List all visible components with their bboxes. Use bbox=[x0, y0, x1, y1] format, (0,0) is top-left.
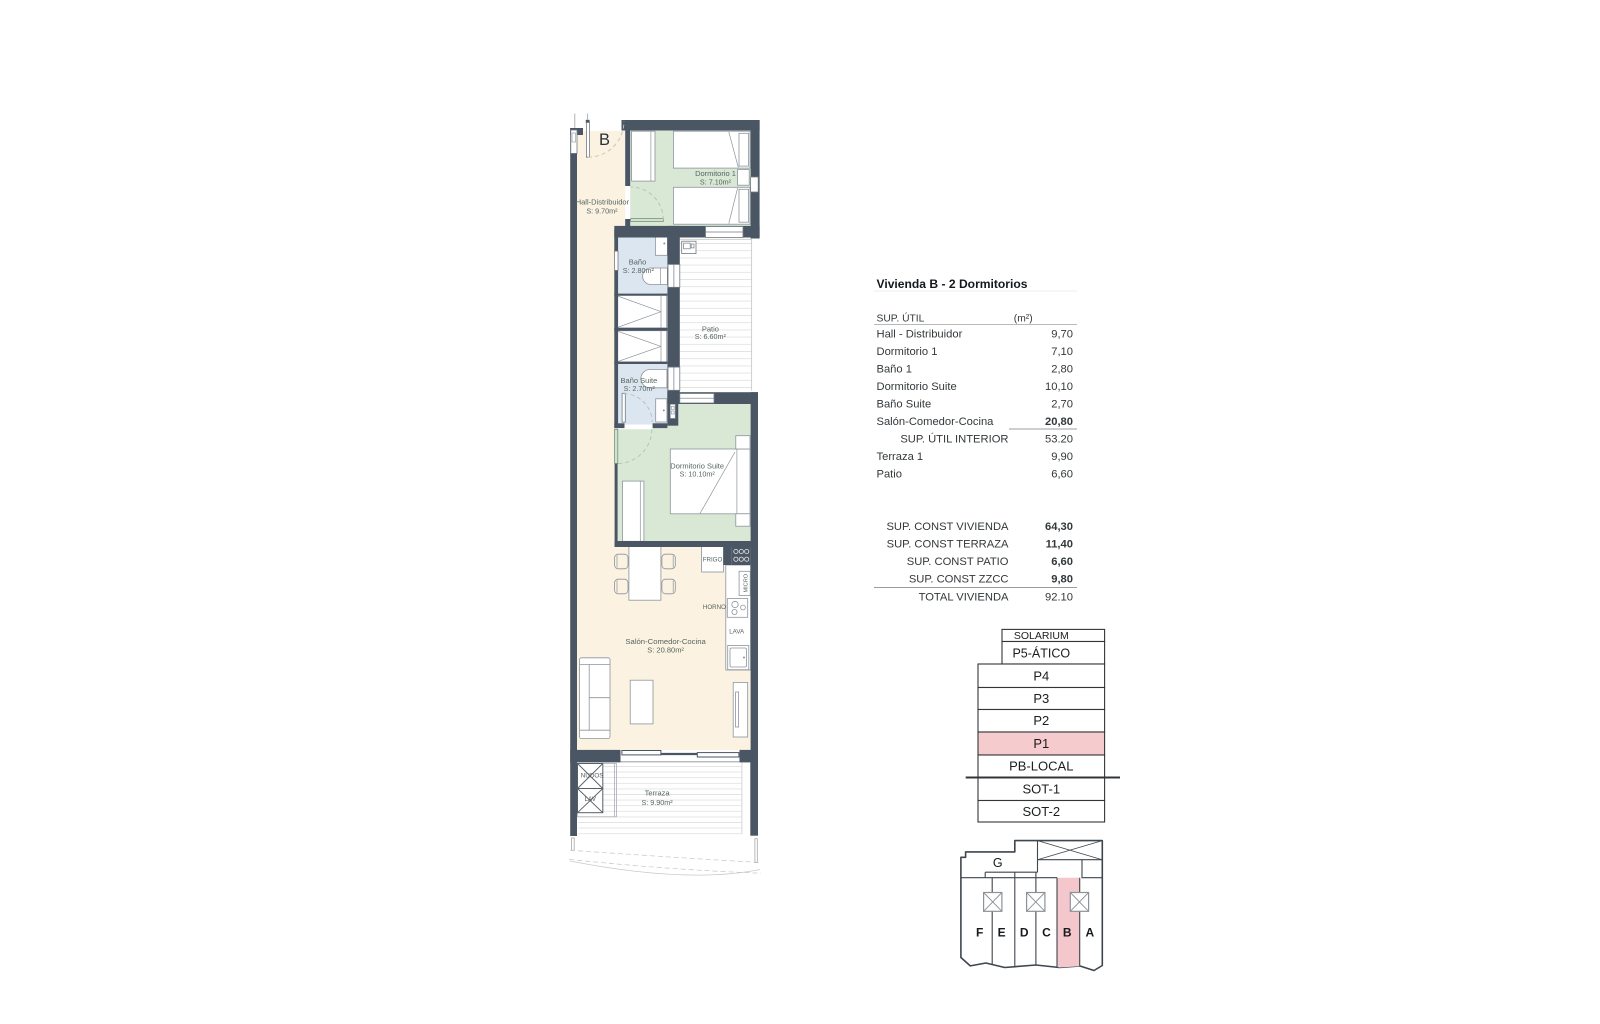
svg-text:NUDOS: NUDOS bbox=[581, 773, 604, 780]
svg-text:92.10: 92.10 bbox=[1045, 592, 1073, 604]
svg-text:S: 6.60m²: S: 6.60m² bbox=[695, 332, 727, 341]
svg-text:TOTAL VIVIENDA: TOTAL VIVIENDA bbox=[919, 592, 1009, 604]
svg-text:2,80: 2,80 bbox=[1051, 364, 1073, 376]
svg-text:SUP. ÚTIL INTERIOR: SUP. ÚTIL INTERIOR bbox=[900, 433, 1008, 446]
svg-text:64,30: 64,30 bbox=[1045, 521, 1073, 533]
svg-text:B: B bbox=[1063, 926, 1072, 940]
svg-text:PB-LOCAL: PB-LOCAL bbox=[1009, 759, 1073, 774]
svg-text:LAV: LAV bbox=[584, 796, 596, 803]
svg-text:P1: P1 bbox=[1033, 736, 1049, 751]
svg-text:S: 20.80m²: S: 20.80m² bbox=[647, 645, 684, 654]
svg-text:S: 2.80m²: S: 2.80m² bbox=[623, 266, 655, 275]
svg-text:Patio: Patio bbox=[877, 469, 903, 481]
svg-text:SUP. CONST VIVIENDA: SUP. CONST VIVIENDA bbox=[886, 521, 1009, 533]
svg-text:Baño 1: Baño 1 bbox=[877, 364, 912, 376]
svg-text:Dormitorio Suite: Dormitorio Suite bbox=[877, 381, 957, 393]
svg-text:A: A bbox=[1085, 926, 1094, 940]
svg-text:SOT-1: SOT-1 bbox=[1023, 782, 1061, 797]
svg-text:Hall - Distribuidor: Hall - Distribuidor bbox=[877, 329, 963, 341]
svg-text:LAVA: LAVA bbox=[729, 629, 745, 636]
svg-text:6,60: 6,60 bbox=[1051, 556, 1073, 568]
svg-text:SUP. ÚTIL: SUP. ÚTIL bbox=[877, 312, 925, 325]
svg-text:F: F bbox=[976, 926, 983, 940]
svg-text:(m²): (m²) bbox=[1014, 314, 1033, 325]
svg-text:Vivienda B - 2 Dormitorios: Vivienda B - 2 Dormitorios bbox=[877, 277, 1028, 291]
svg-text:9,80: 9,80 bbox=[1051, 574, 1073, 586]
svg-text:Hall-Distribuidor: Hall-Distribuidor bbox=[576, 198, 630, 207]
svg-text:Salón-Comedor-Cocina: Salón-Comedor-Cocina bbox=[877, 416, 995, 428]
svg-text:20,80: 20,80 bbox=[1045, 416, 1073, 428]
svg-text:SUP. CONST TERRAZA: SUP. CONST TERRAZA bbox=[887, 539, 1009, 551]
svg-text:S: 9.70m²: S: 9.70m² bbox=[586, 207, 618, 216]
svg-text:Terraza 1: Terraza 1 bbox=[877, 451, 924, 463]
svg-text:P3: P3 bbox=[1033, 691, 1049, 706]
svg-text:6,60: 6,60 bbox=[1051, 469, 1073, 481]
svg-text:FRIGO: FRIGO bbox=[703, 557, 723, 564]
svg-text:10,10: 10,10 bbox=[1045, 381, 1073, 393]
svg-text:P2: P2 bbox=[1033, 713, 1049, 728]
svg-text:S: 10.10m²: S: 10.10m² bbox=[680, 470, 716, 479]
svg-text:P5-ÁTICO: P5-ÁTICO bbox=[1012, 645, 1070, 660]
svg-text:53.20: 53.20 bbox=[1045, 434, 1073, 446]
svg-text:Dormitorio 1: Dormitorio 1 bbox=[877, 346, 938, 358]
svg-text:SOLARIUM: SOLARIUM bbox=[1014, 630, 1069, 642]
svg-text:Terraza: Terraza bbox=[645, 789, 671, 798]
svg-text:G: G bbox=[993, 856, 1003, 870]
svg-text:MICRO: MICRO bbox=[743, 573, 749, 592]
svg-text:C: C bbox=[1042, 926, 1051, 940]
svg-text:7,10: 7,10 bbox=[1051, 346, 1073, 358]
svg-text:Baño Suite: Baño Suite bbox=[877, 399, 932, 411]
svg-text:S: 7.10m²: S: 7.10m² bbox=[700, 177, 732, 186]
svg-text:9,90: 9,90 bbox=[1051, 451, 1073, 463]
svg-text:P4: P4 bbox=[1033, 669, 1049, 684]
svg-text:9,70: 9,70 bbox=[1051, 329, 1073, 341]
svg-text:SUP. CONST ZZCC: SUP. CONST ZZCC bbox=[909, 574, 1009, 586]
svg-text:B: B bbox=[599, 131, 610, 149]
svg-text:2,70: 2,70 bbox=[1051, 399, 1073, 411]
svg-text:HORNO: HORNO bbox=[703, 604, 726, 611]
svg-text:SOT-2: SOT-2 bbox=[1023, 804, 1061, 819]
svg-text:S: 9.90m²: S: 9.90m² bbox=[642, 798, 674, 807]
svg-text:E: E bbox=[998, 926, 1006, 940]
svg-text:D: D bbox=[1020, 926, 1029, 940]
svg-text:11,40: 11,40 bbox=[1046, 539, 1073, 551]
svg-text:S: 2.70m²: S: 2.70m² bbox=[624, 384, 656, 393]
svg-text:SUP. CONST PATIO: SUP. CONST PATIO bbox=[907, 556, 1009, 568]
